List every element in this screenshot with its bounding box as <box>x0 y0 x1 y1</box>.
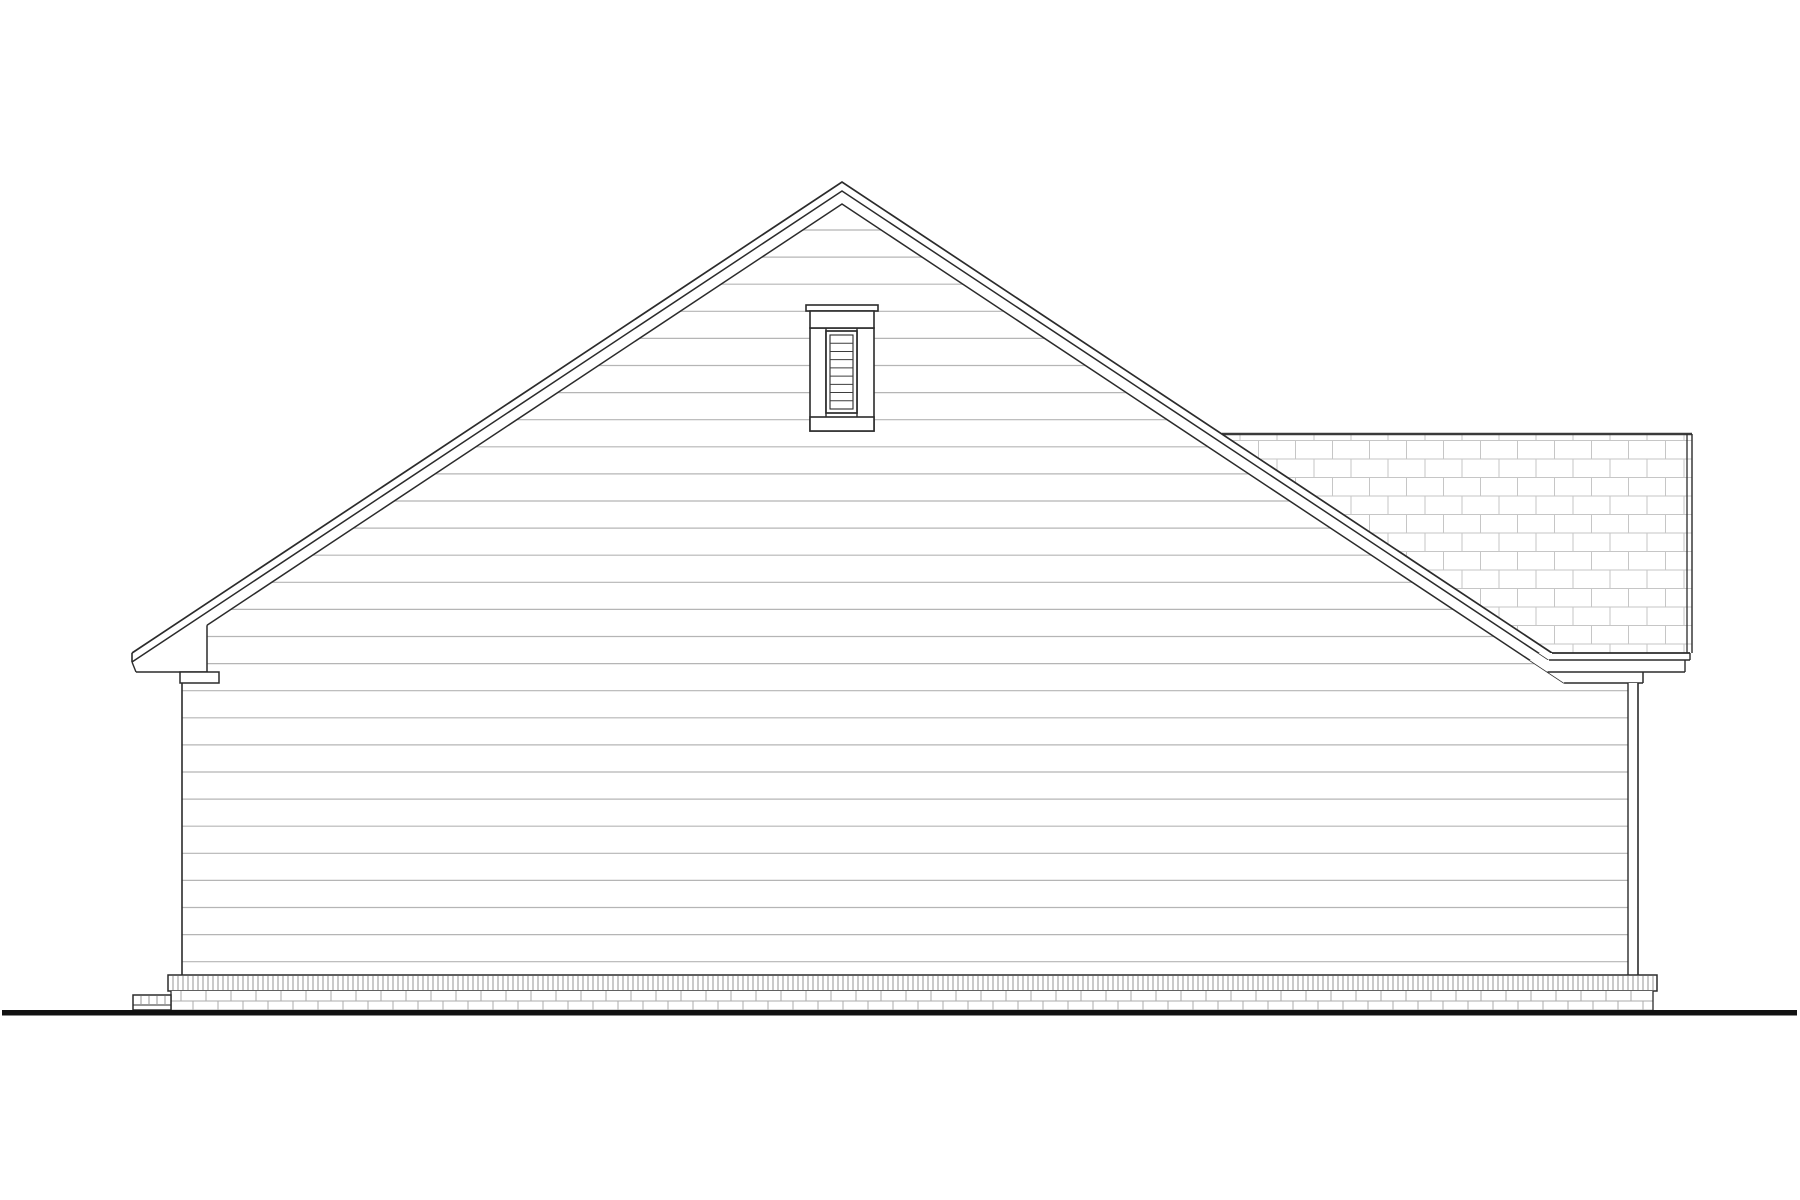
entry-stoop <box>133 995 171 1010</box>
foundation-brick-courses <box>168 975 1657 1010</box>
elevation-drawing <box>0 0 1800 1200</box>
ground-line <box>2 1010 1797 1016</box>
elevation-sheet <box>0 0 1800 1200</box>
wall-corner-trim <box>182 683 1638 975</box>
attic-vent <box>806 305 878 431</box>
right-eave-fascia <box>1529 653 1690 683</box>
shingle-roof <box>1222 434 1692 653</box>
